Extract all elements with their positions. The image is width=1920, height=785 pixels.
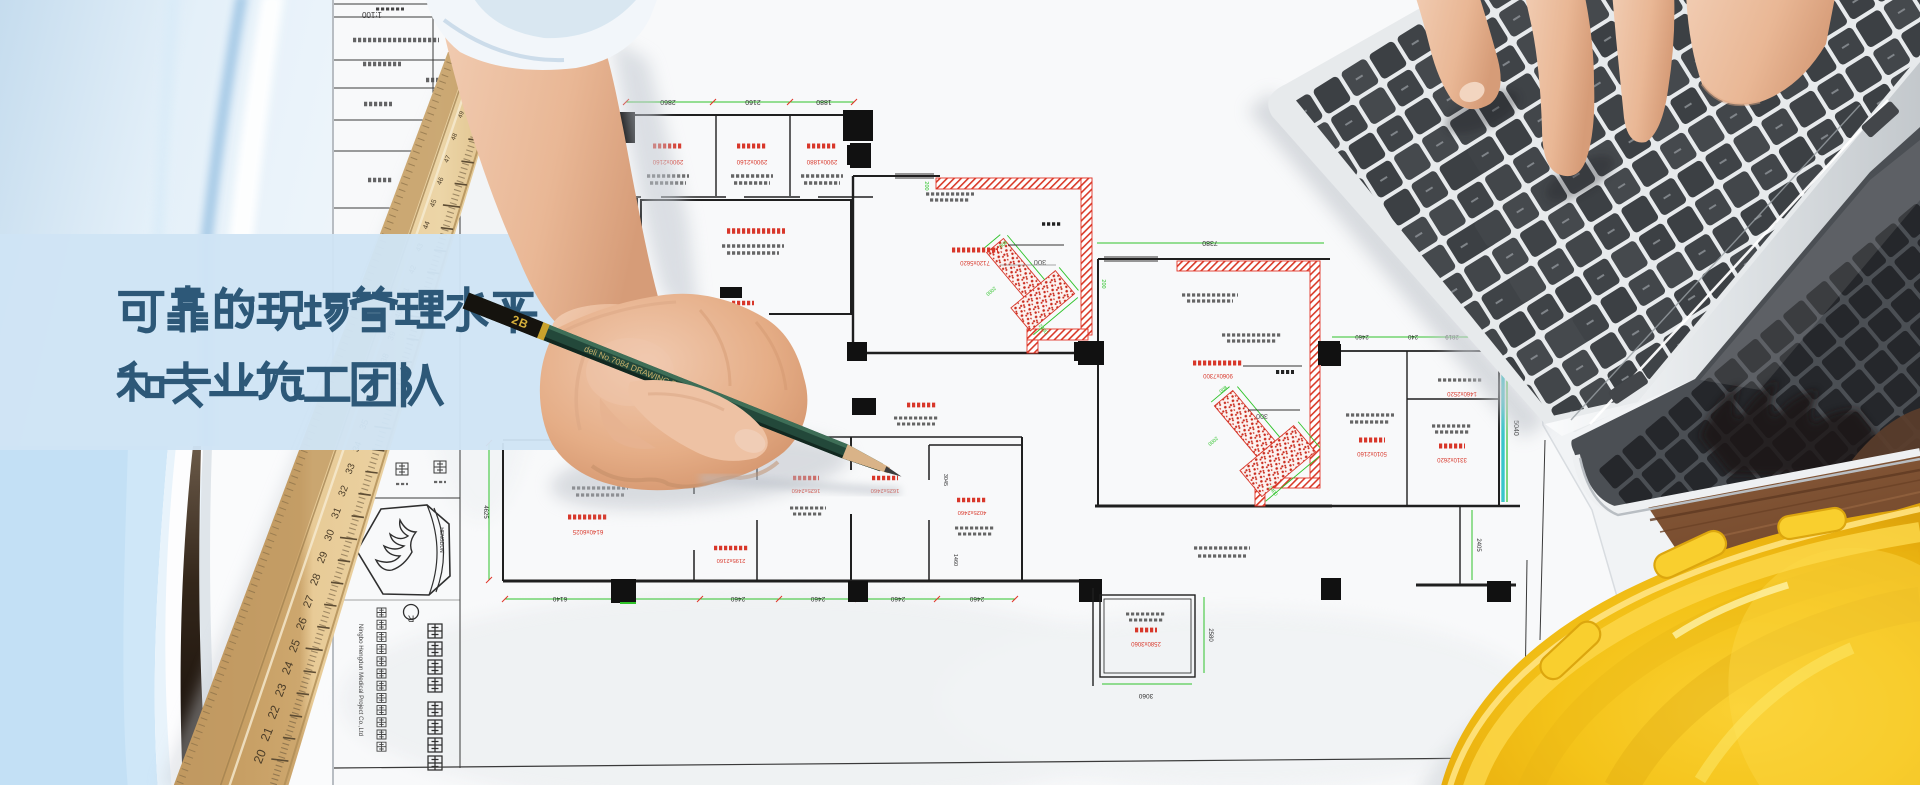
- svg-text:1460x2520: 1460x2520: [1446, 390, 1476, 396]
- svg-text:300: 300: [1034, 258, 1047, 267]
- svg-text:4625: 4625: [482, 505, 488, 519]
- svg-text:R: R: [407, 614, 414, 624]
- svg-text:200: 200: [1100, 279, 1106, 288]
- svg-text:7120x5620: 7120x5620: [959, 259, 989, 265]
- svg-text:6140x6025: 6140x6025: [572, 528, 603, 535]
- svg-text:2900x1880: 2900x1880: [806, 158, 837, 165]
- svg-text:3060: 3060: [1138, 692, 1153, 699]
- svg-text:2460: 2460: [1355, 333, 1369, 339]
- svg-text:2405: 2405: [1475, 538, 1481, 552]
- svg-text:200: 200: [923, 181, 929, 190]
- svg-text:3045: 3045: [942, 474, 948, 486]
- svg-text:1:100: 1:100: [361, 10, 382, 19]
- svg-text:4025x2460: 4025x2460: [958, 509, 987, 515]
- svg-text:5010x2160: 5010x2160: [1356, 450, 1386, 456]
- svg-text:Ningbo Hengdun Medical Project: Ningbo Hengdun Medical Project Co.,Ltd: [357, 624, 364, 737]
- svg-text:2860: 2860: [660, 98, 676, 105]
- svg-text:2460: 2460: [969, 595, 984, 602]
- svg-text:3310x2620: 3310x2620: [1436, 456, 1466, 462]
- svg-text:9060x7300: 9060x7300: [1202, 372, 1232, 378]
- svg-text:2580x3060: 2580x3060: [1130, 640, 1160, 646]
- svg-text:300: 300: [1256, 412, 1268, 419]
- svg-text:2900x2160: 2900x2160: [736, 158, 767, 165]
- svg-text:HENGDUN: HENGDUN: [438, 527, 444, 553]
- svg-text:7380: 7380: [1202, 239, 1218, 246]
- svg-text:6140: 6140: [552, 595, 567, 602]
- svg-text:2460: 2460: [890, 595, 905, 602]
- svg-text:1880: 1880: [816, 98, 832, 105]
- svg-text:2460: 2460: [810, 595, 825, 602]
- svg-text:2580: 2580: [1207, 628, 1213, 642]
- svg-text:2195x2160: 2195x2160: [717, 557, 746, 563]
- svg-text:1460: 1460: [952, 554, 958, 566]
- svg-text:240: 240: [1407, 333, 1418, 339]
- svg-text:2460: 2460: [730, 595, 745, 602]
- svg-text:2160: 2160: [745, 98, 761, 105]
